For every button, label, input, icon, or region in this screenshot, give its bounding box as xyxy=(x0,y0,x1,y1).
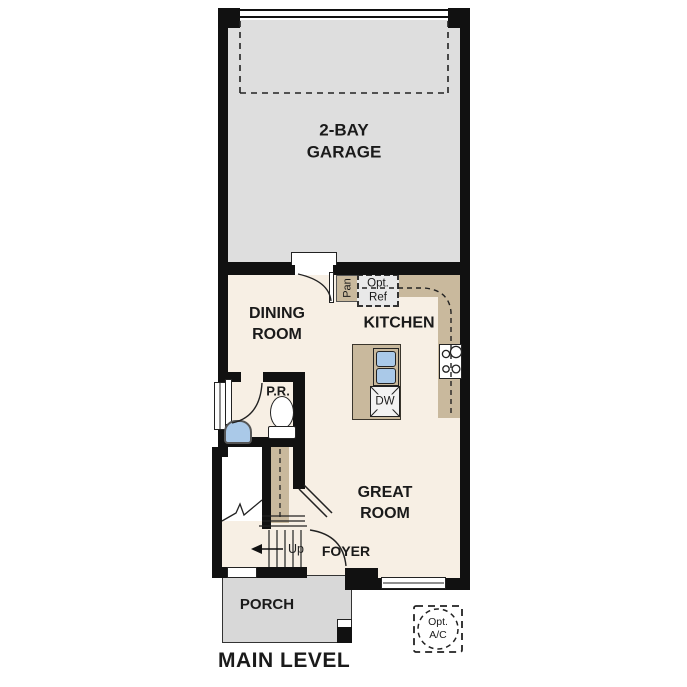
pr-sink xyxy=(224,420,252,444)
floor-plan: 2-BAY GARAGE DINING ROOM KITCHEN GREAT R… xyxy=(0,0,687,687)
stair-flight-upper xyxy=(271,447,289,523)
plan-title: MAIN LEVEL xyxy=(218,647,350,675)
wall-corner-top-right xyxy=(448,8,470,28)
wall-left-lower xyxy=(212,447,222,578)
wall-garage-house-right xyxy=(333,262,470,275)
wall-stair-left xyxy=(262,447,271,529)
wall-garage-house-left xyxy=(218,262,295,275)
dining-room-label: DINING ROOM xyxy=(249,303,305,345)
porch-post xyxy=(337,627,352,643)
wall-corner-top-left xyxy=(218,8,240,28)
wall-left-garage xyxy=(218,8,228,275)
greatroom-window xyxy=(381,577,446,589)
garage-overhead-door xyxy=(240,9,448,18)
wall-left-house xyxy=(218,275,228,382)
under-stair-closet xyxy=(222,447,262,521)
pr-door-leaf xyxy=(225,379,232,425)
wall-foyer-bottom-right xyxy=(257,567,307,578)
island-sink-basin-bottom xyxy=(376,368,396,384)
foyer-label: FOYER xyxy=(322,542,370,560)
up-label: Up xyxy=(288,541,304,558)
wall-right xyxy=(460,8,470,590)
powder-room-label: P.R. xyxy=(266,382,290,399)
island-sink-basin-top xyxy=(376,351,396,367)
porch-label: PORCH xyxy=(240,595,294,615)
toilet-tank xyxy=(268,426,296,439)
wall-foyer-bottom-left xyxy=(212,567,227,578)
opt-ac-label: Opt. A/C xyxy=(428,616,448,642)
toilet-bowl xyxy=(270,396,294,429)
opt-ref-label: Opt. Ref xyxy=(367,277,389,306)
garage-door-recess xyxy=(291,252,337,265)
garage-entry-door-leaf xyxy=(329,272,334,303)
great-room-label: GREAT ROOM xyxy=(358,482,413,524)
wall-left-jog xyxy=(212,447,228,457)
dishwasher-label: DW xyxy=(373,394,396,409)
garage-label: 2-BAY GARAGE xyxy=(307,120,382,165)
wall-stair-right xyxy=(293,447,305,489)
porch-window xyxy=(227,567,257,578)
pantry-label: Pan xyxy=(341,278,356,298)
kitchen-label: KITCHEN xyxy=(363,312,434,333)
cooktop xyxy=(439,344,462,379)
